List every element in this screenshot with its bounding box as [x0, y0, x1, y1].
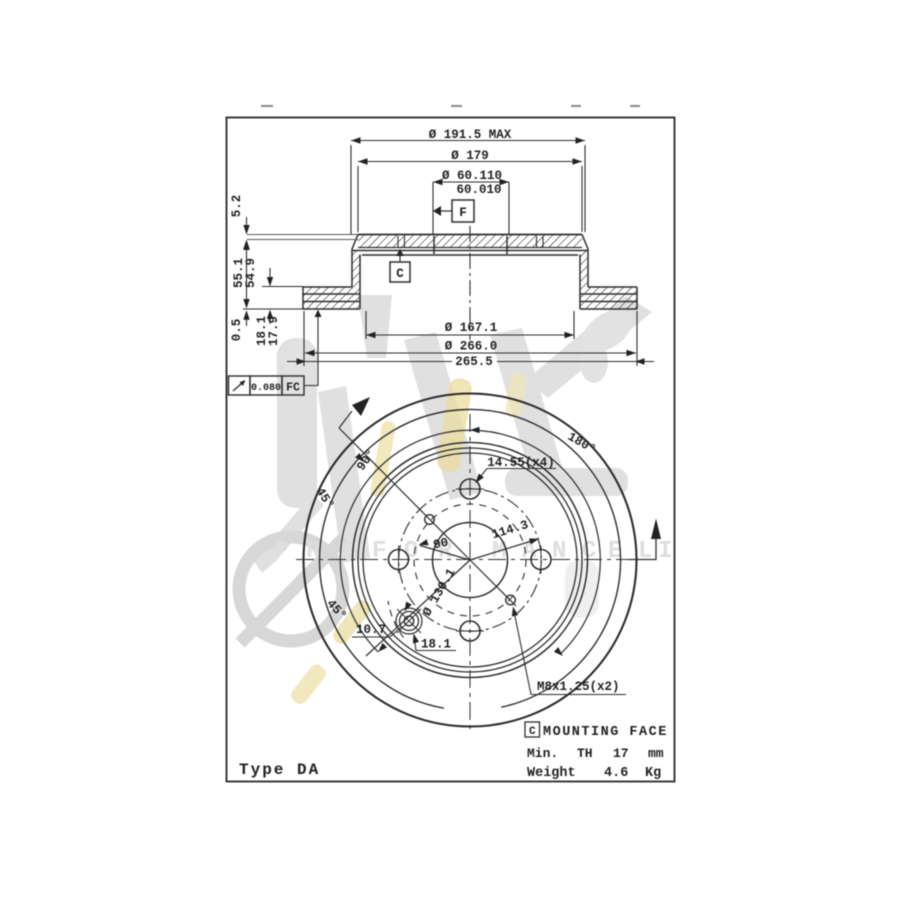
svg-text:17: 17 — [613, 746, 629, 761]
svg-text:180°: 180° — [565, 430, 598, 457]
svg-text:Min.: Min. — [527, 746, 558, 761]
svg-text:10.7: 10.7 — [356, 623, 386, 637]
svg-text:4.6: 4.6 — [604, 766, 628, 781]
svg-text:5.2: 5.2 — [230, 195, 244, 218]
svg-text:R: R — [306, 538, 321, 565]
svg-text:MOUNTING FACE: MOUNTING FACE — [543, 725, 668, 740]
svg-text:Weight: Weight — [527, 766, 576, 781]
svg-text:F: F — [372, 538, 386, 565]
svg-text:C: C — [396, 267, 404, 281]
svg-text:Ø 179: Ø 179 — [451, 149, 489, 163]
svg-text:P: P — [274, 538, 288, 565]
svg-text:265.5: 265.5 — [455, 355, 493, 369]
svg-text:Ø 60.110: Ø 60.110 — [442, 169, 502, 183]
svg-text:0.080: 0.080 — [251, 383, 281, 394]
svg-text:mm: mm — [648, 746, 664, 761]
svg-text:Kg: Kg — [645, 766, 661, 781]
svg-text:C: C — [529, 726, 536, 738]
svg-text:Type DA: Type DA — [239, 761, 320, 779]
svg-text:F: F — [459, 206, 467, 220]
svg-text:TH: TH — [577, 746, 593, 761]
svg-text:60.010: 60.010 — [456, 183, 501, 197]
svg-text:18.1: 18.1 — [421, 638, 451, 652]
svg-text:Ø 191.5 MAX: Ø 191.5 MAX — [429, 128, 512, 142]
svg-text:C: C — [582, 538, 596, 565]
svg-text:FC: FC — [286, 382, 300, 395]
svg-text:M8x1.25(x2): M8x1.25(x2) — [537, 680, 620, 694]
svg-text:Ø 167.1: Ø 167.1 — [445, 321, 498, 335]
svg-text:O: O — [404, 538, 418, 565]
svg-text:14.55(x4): 14.55(x4) — [487, 456, 555, 470]
svg-text:Ø 266.0: Ø 266.0 — [445, 340, 498, 354]
svg-text:0.5: 0.5 — [230, 319, 244, 342]
svg-text:L: L — [638, 538, 652, 565]
svg-text:17.9: 17.9 — [267, 316, 281, 346]
svg-text:I: I — [658, 538, 672, 565]
svg-text:N: N — [552, 538, 566, 565]
svg-text:54.9: 54.9 — [244, 258, 258, 288]
